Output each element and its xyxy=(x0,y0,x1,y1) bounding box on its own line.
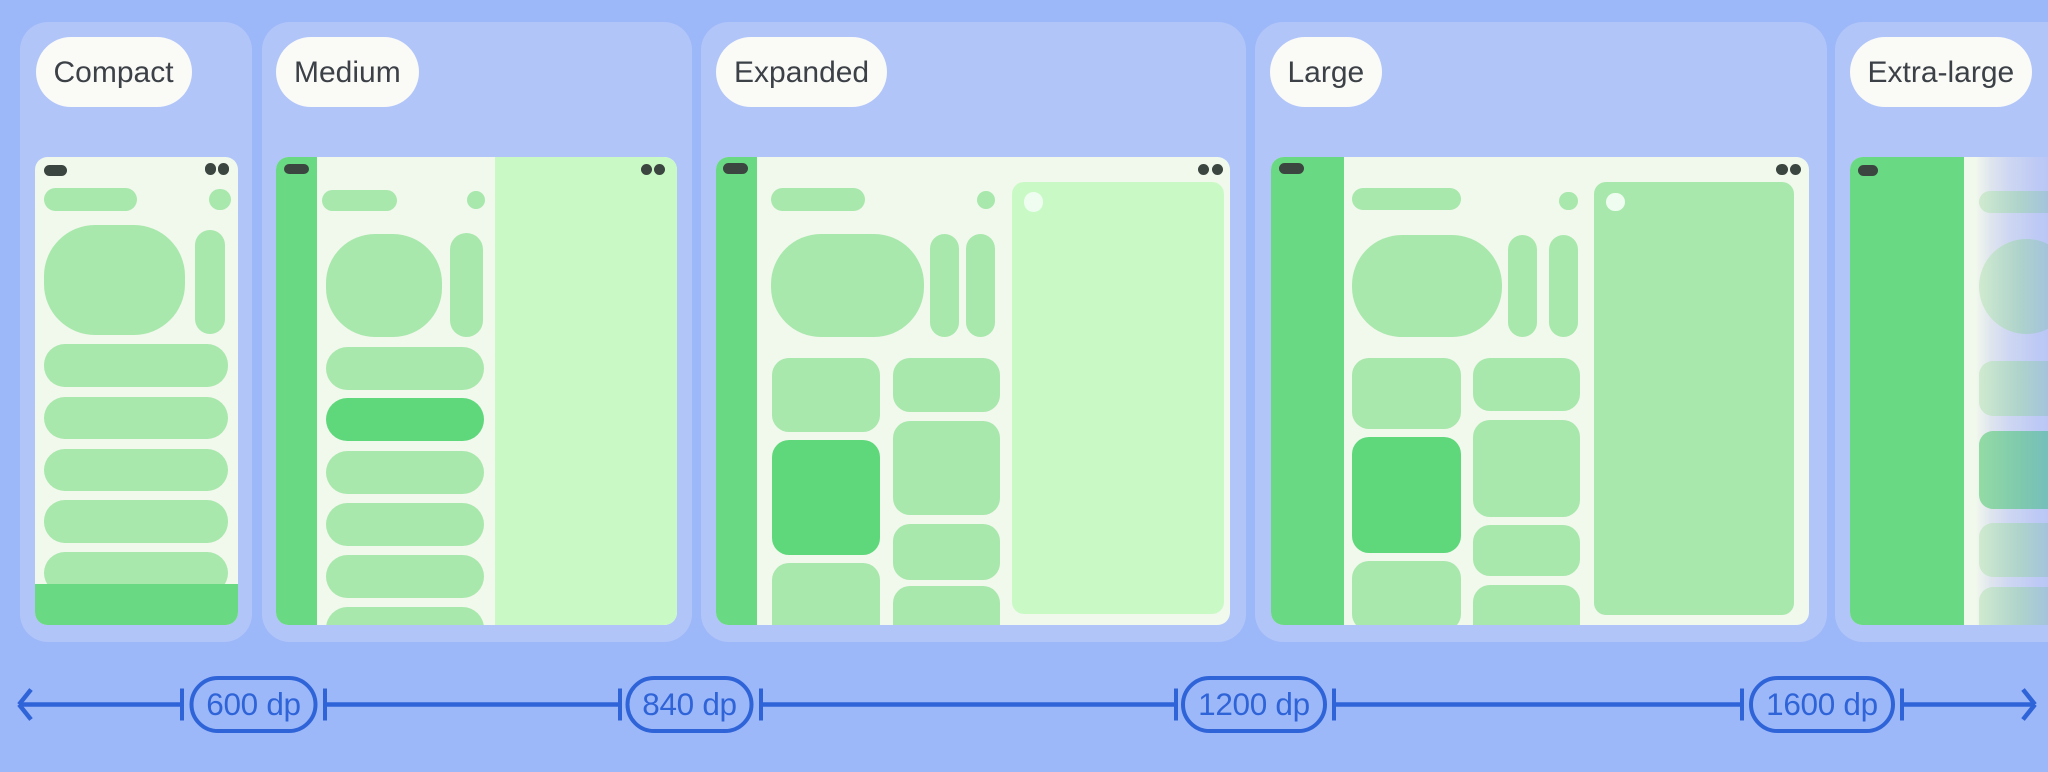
svg-text:1600 dp: 1600 dp xyxy=(1766,686,1878,722)
svg-text:600 dp: 600 dp xyxy=(206,686,301,722)
svg-text:1200 dp: 1200 dp xyxy=(1198,686,1310,722)
svg-text:840 dp: 840 dp xyxy=(642,686,737,722)
